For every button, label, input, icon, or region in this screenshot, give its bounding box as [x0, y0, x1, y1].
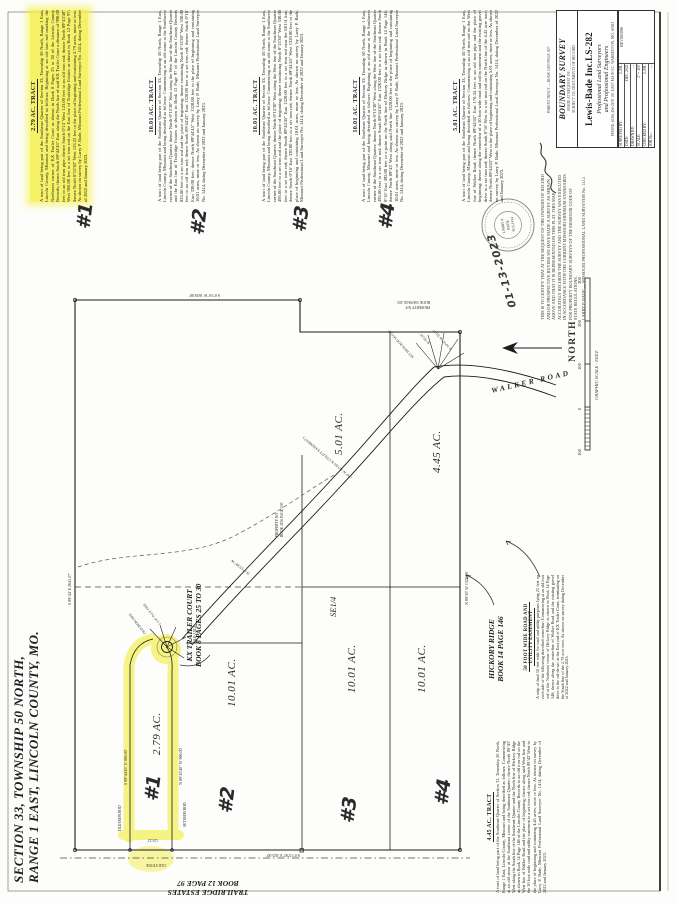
- acreage-tract6: 4.45 AC.: [431, 430, 443, 473]
- handwritten-tract2-drawing: #2: [214, 785, 239, 814]
- tract2-body: A tract of land being part of the Southe…: [157, 10, 206, 202]
- company-phone: PHONE: (636) 456-2478 101 EAST MAIN ST.,…: [611, 11, 616, 147]
- sheet-title: SECTION 33, TOWNSHIP 50 NORTH, RANGE 1 E…: [12, 631, 42, 883]
- acreage-tract3: 10.01 AC.: [346, 644, 358, 693]
- handwritten-tract4-drawing: #4: [430, 777, 455, 806]
- tract1-body: A tract of land being part of the Southe…: [39, 10, 88, 202]
- walker-road-label: WALKER ROAD: [490, 368, 571, 395]
- svg-text:PLS-1414: PLS-1414: [510, 217, 516, 232]
- creek-line: [78, 475, 334, 567]
- scale-caption: GRAPHIC SCALE - FEET: [594, 350, 599, 400]
- survey-sheet-landscape: 2.79 AC. 10.01 AC. 10.01 AC. 10.01 AC. 5…: [0, 0, 677, 905]
- tract6-heading: 4.45 AC. TRACT: [487, 792, 494, 843]
- easement-body: A strip of land 50 feet wide for road an…: [536, 575, 570, 699]
- svg-text:100: 100: [577, 448, 582, 456]
- svg-text:100: 100: [577, 362, 582, 370]
- svg-text:1-1/4" O.I.P. FND.: 1-1/4" O.I.P. FND.: [142, 602, 162, 626]
- svg-text:SET IRON ROD: SET IRON ROD: [183, 802, 187, 827]
- tract-description-1: 2.79 AC. TRACT A tract of land being par…: [30, 10, 88, 202]
- north-arrow: NORTH: [502, 320, 578, 362]
- kx-trailer-court-label: KX TRAILER COURT BOOK 8 PAGES 25 TO 30: [185, 584, 204, 667]
- easement-note: 50 FOOT WIDE ROAD AND UTILITY EASEMENT A…: [524, 575, 570, 699]
- acreage-tract5: 5.01 AC.: [333, 412, 345, 455]
- svg-text:OLD STONE: OLD STONE: [145, 863, 166, 867]
- handwritten-tract3-margin: #3: [288, 204, 313, 233]
- tract1-heading: 2.79 AC. TRACT: [30, 79, 38, 133]
- subject-to: SUBJECT TO: DOCUMENTS OF RECORD: [572, 11, 577, 147]
- svg-text:0: 0: [577, 407, 582, 410]
- tract2-heading: 10.01 AC. TRACT: [148, 77, 156, 134]
- handwritten-tract3-drawing: #3: [336, 795, 361, 824]
- sheet-title-line2: RANGE 1 EAST, LINCOLN COUNTY, MO.: [27, 631, 42, 883]
- svg-text:S 0°16' W 1650.00': S 0°16' W 1650.00': [189, 293, 220, 298]
- svg-text:N 0°15'30" W: N 0°15'30" W: [230, 558, 251, 576]
- svg-text:PROPERTY N/F: PROPERTY N/F: [405, 305, 430, 309]
- svg-text:S 89°44'45" E 990.00': S 89°44'45" E 990.00': [123, 749, 128, 785]
- certification-signer: LARRY P. BADE — MISSOURI PROFESSIONAL LA…: [581, 140, 587, 320]
- company-name: Lewis-Bade Inc.: [584, 61, 594, 126]
- tract-description-4: 10.01 AC. TRACT A tract of land being pa…: [352, 10, 405, 202]
- scanned-survey-page: 2.79 AC. 10.01 AC. 10.01 AC. 10.01 AC. 5…: [0, 0, 677, 905]
- acreage-tract4: 10.01 AC.: [416, 644, 428, 693]
- svg-text:SET IRON ROD W/CAP: SET IRON ROD W/CAP: [387, 329, 415, 359]
- bearing-labels: S 89°44'45" E 990.00' N 89°43'40" W 966.…: [67, 293, 469, 867]
- svg-text:PROPERTY N/F: PROPERTY N/F: [275, 512, 279, 537]
- svg-text:S 89°44' E 2641.27': S 89°44' E 2641.27': [67, 573, 72, 605]
- tract-description-3: 10.01 AC. TRACT A tract of land being pa…: [252, 10, 305, 202]
- tract-description-5: 5.01 AC. TRACT A tract of land being par…: [452, 10, 505, 202]
- road-lines: [182, 333, 556, 645]
- survey-type: BOUNDARY SURVEY: [558, 11, 567, 147]
- acreage-tract1: 2.79 AC.: [151, 712, 163, 755]
- title-block: BOUNDARY SURVEY MADE AT REQUEST OF: ____…: [556, 10, 655, 148]
- sheet-title-line1: SECTION 33, TOWNSHIP 50 NORTH,: [12, 631, 27, 883]
- company-license: LS-282: [584, 32, 594, 61]
- handwritten-tract1-margin: #1: [72, 201, 97, 230]
- svg-text:OLD IRON ROD: OLD IRON ROD: [118, 805, 122, 831]
- handwritten-tract4-margin: #4: [374, 201, 399, 230]
- quarter-label: SE1/4: [328, 596, 338, 617]
- svg-text:OLD IRON PIPE: OLD IRON PIPE: [128, 612, 147, 635]
- svg-text:S 0°15'30" E 825.00': S 0°15'30" E 825.00': [266, 853, 300, 858]
- certification-block: THIS IS TO CERTIFY THAT AT THE REQUEST O…: [540, 140, 586, 320]
- acreage-tract2: 10.01 AC.: [226, 658, 238, 707]
- svg-text:123.22': 123.22': [147, 838, 158, 842]
- tract-description-2: 10.01 AC. TRACT A tract of land being pa…: [148, 10, 206, 202]
- tract6-body: A tract of land being part of the Southe…: [495, 741, 547, 893]
- revisions-cell: REVISIONS: [619, 11, 654, 63]
- tract3-body: A tract of land being part of the Southe…: [261, 10, 305, 202]
- hickory-ridge-label: HICKORY RIDGE BOOK 14 PAGE 146: [487, 601, 506, 697]
- company-line-b: and Professional Engineers: [604, 11, 611, 147]
- tract4-body: A tract of land being part of the Southe…: [361, 10, 405, 202]
- handwritten-tract2-margin: #2: [186, 207, 211, 236]
- tract-description-6: 4.45 AC. TRACT A tract of land being par…: [487, 741, 547, 893]
- trailridge-estates-label: TRAILRIDGE ESTATES BOOK 12 PAGE 97: [158, 878, 258, 897]
- tract5-body: A tract of land being part of the Southe…: [461, 10, 505, 202]
- parent-tract-note: PARENT TRACT — BOOK 1483 PAGE 307: [547, 12, 551, 148]
- tract4-heading: 10.01 AC. TRACT: [352, 77, 360, 134]
- svg-text:N 89°43'40" W 966.00': N 89°43'40" W 966.00': [178, 748, 183, 785]
- svg-text:BOOK 558 PAGE 203: BOOK 558 PAGE 203: [397, 300, 430, 304]
- tract5-heading: 5.01 AC. TRACT: [452, 79, 460, 133]
- handwritten-tract1-drawing: #1: [140, 773, 165, 802]
- svg-text:BOOK 1156 PAGE 100: BOOK 1156 PAGE 100: [280, 502, 284, 537]
- svg-text:200: 200: [577, 319, 582, 327]
- tract3-heading: 10.01 AC. TRACT: [252, 77, 260, 134]
